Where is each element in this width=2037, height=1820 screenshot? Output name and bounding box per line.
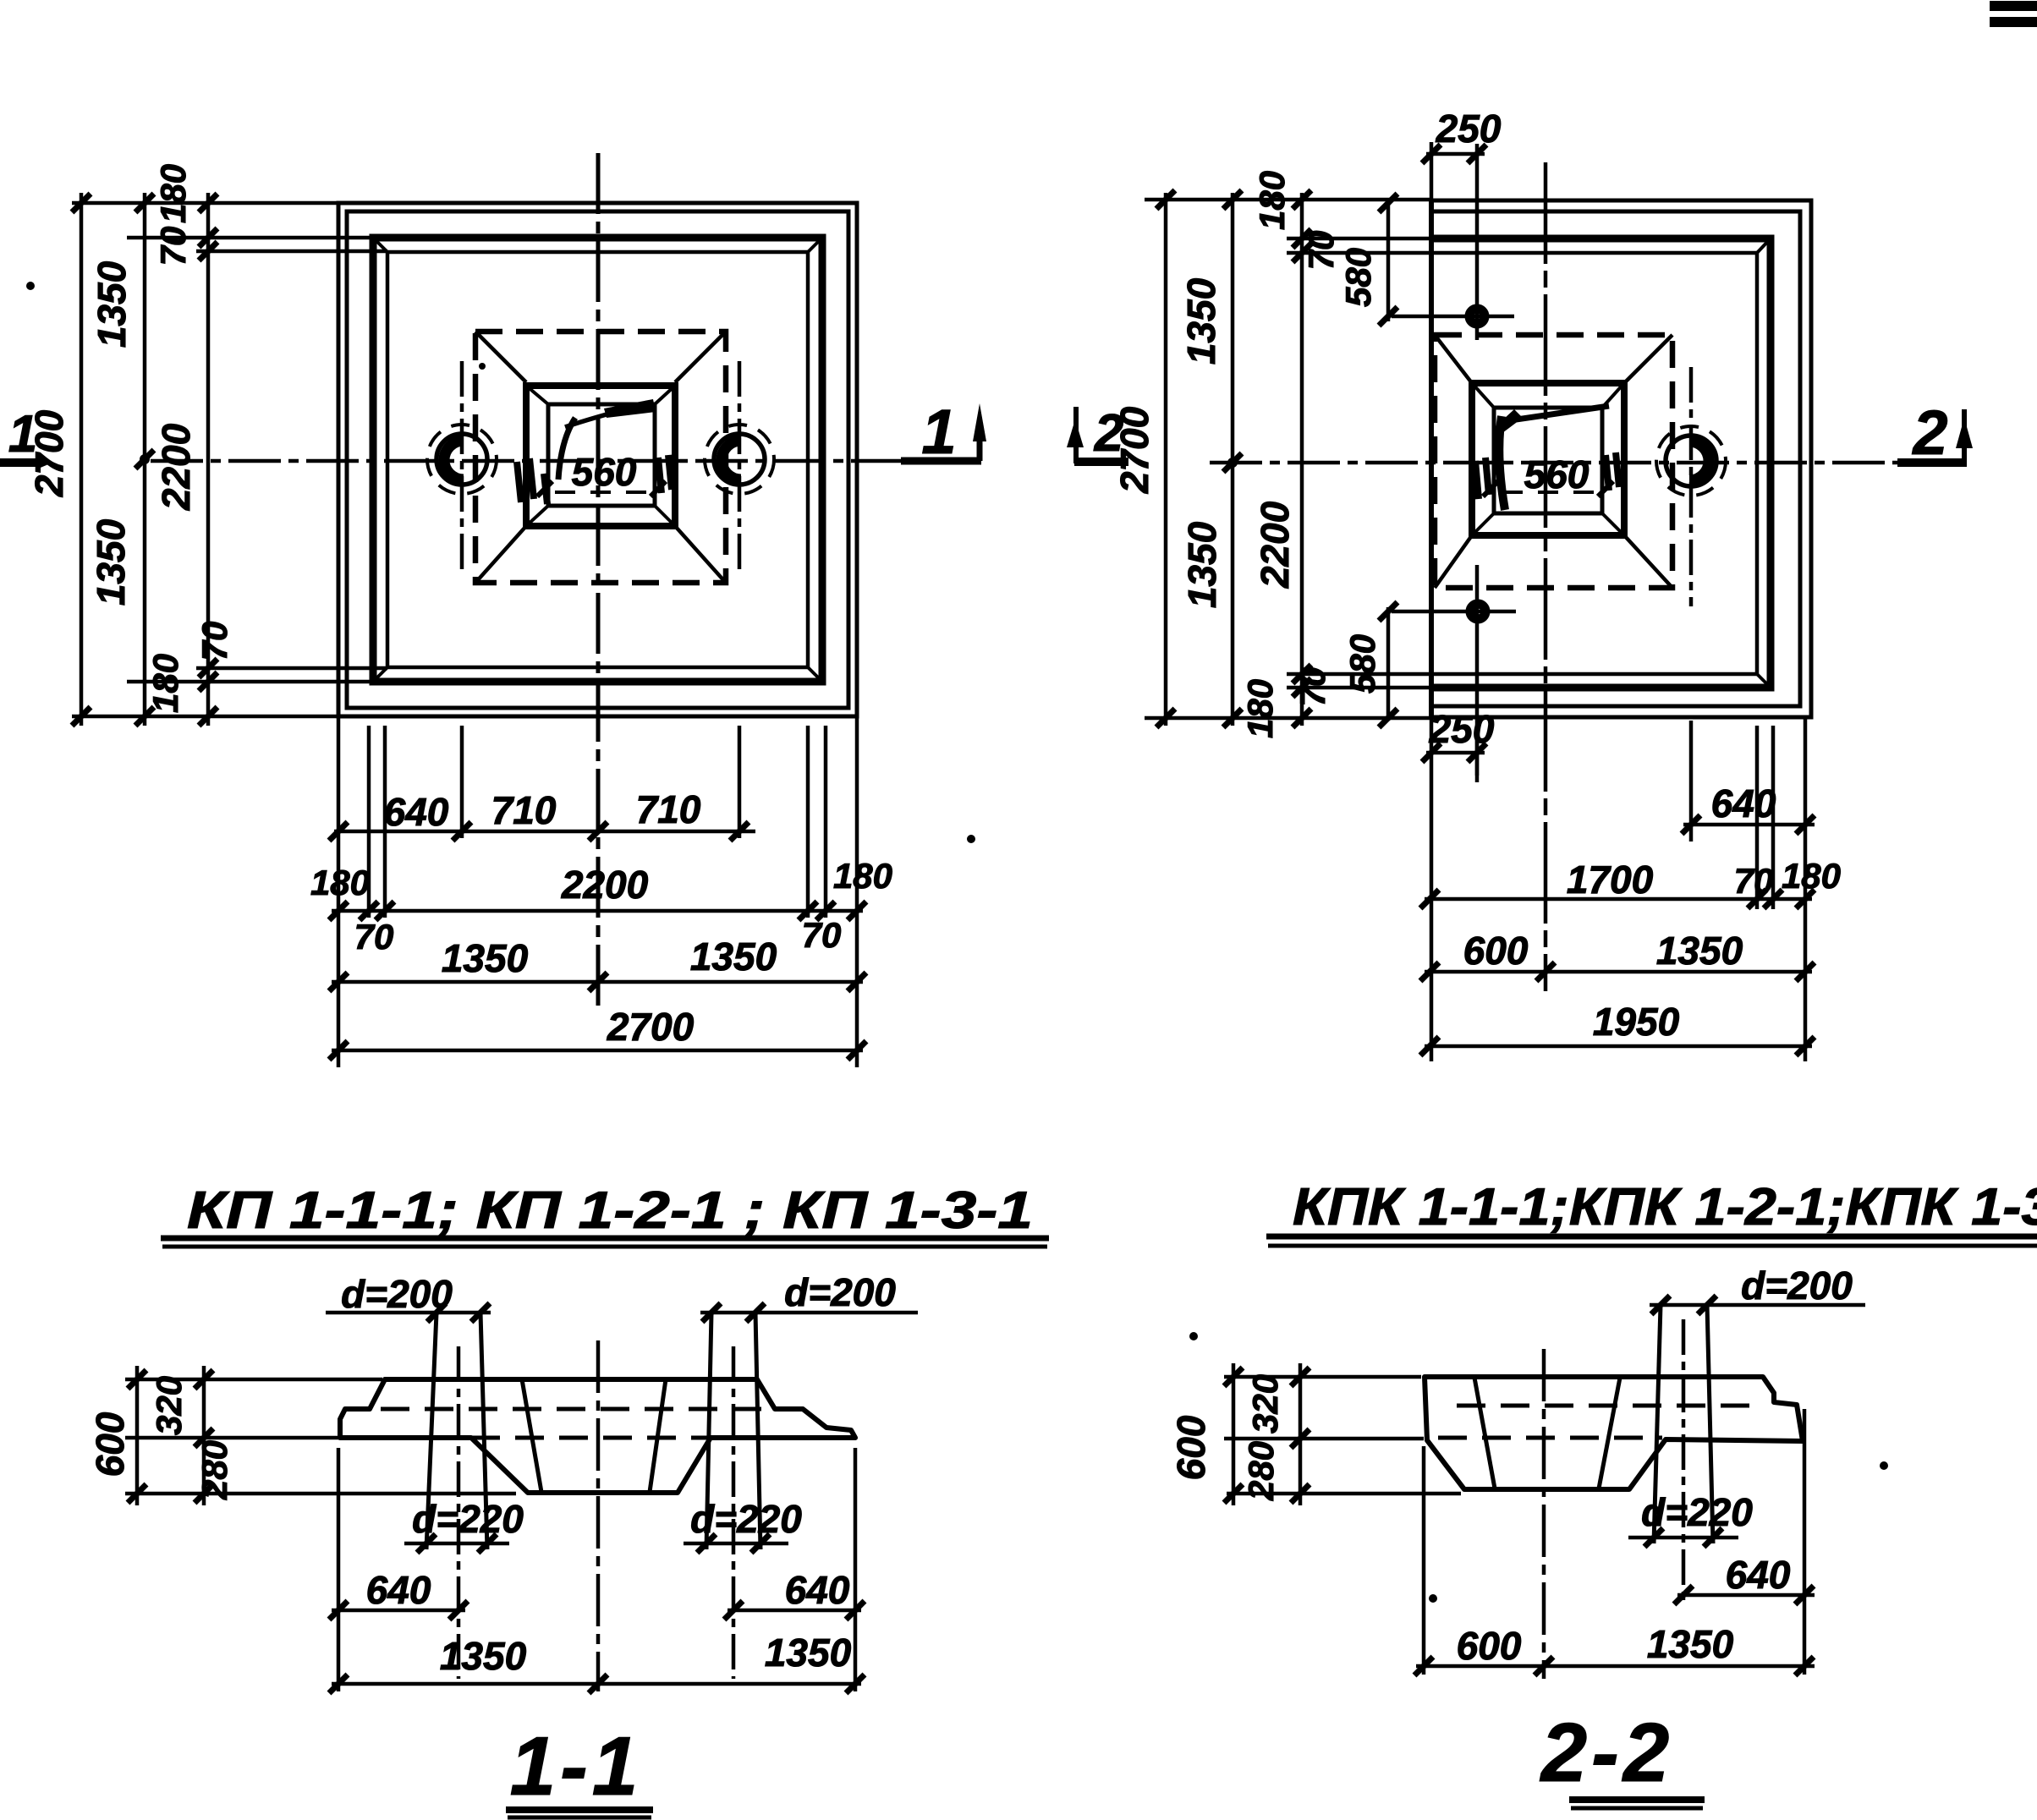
svg-text:d=200: d=200 xyxy=(341,1272,453,1316)
svg-text:600: 600 xyxy=(88,1412,132,1477)
svg-text:1350: 1350 xyxy=(1179,277,1223,365)
svg-text:2: 2 xyxy=(1911,397,1947,468)
svg-text:640: 640 xyxy=(1711,781,1776,825)
svg-text:70: 70 xyxy=(1293,667,1332,707)
svg-text:1350: 1350 xyxy=(90,260,134,348)
svg-text:180: 180 xyxy=(1240,679,1280,738)
svg-text:180: 180 xyxy=(153,164,193,223)
svg-text:600: 600 xyxy=(1457,1624,1522,1668)
svg-text:320: 320 xyxy=(1245,1374,1285,1434)
svg-text:70: 70 xyxy=(153,227,193,266)
svg-text:2200: 2200 xyxy=(561,863,649,907)
svg-text:d=220: d=220 xyxy=(1641,1490,1753,1534)
svg-text:1350: 1350 xyxy=(440,1634,527,1678)
svg-text:580: 580 xyxy=(1342,634,1382,693)
svg-text:2: 2 xyxy=(1094,404,1123,463)
svg-text:710: 710 xyxy=(491,788,557,832)
svg-text:600: 600 xyxy=(1463,929,1529,973)
svg-text:180: 180 xyxy=(310,863,370,902)
svg-text:1700: 1700 xyxy=(1567,858,1654,902)
svg-text:280: 280 xyxy=(195,1440,234,1500)
svg-text:560: 560 xyxy=(1524,452,1590,496)
svg-text:2200: 2200 xyxy=(154,423,198,511)
svg-text:710: 710 xyxy=(636,787,701,831)
svg-text:2200: 2200 xyxy=(1253,501,1297,589)
svg-text:70: 70 xyxy=(802,915,842,955)
svg-text:d=220: d=220 xyxy=(412,1497,524,1541)
svg-text:2700: 2700 xyxy=(607,1005,695,1049)
svg-text:d=200: d=200 xyxy=(784,1270,896,1314)
svg-text:1350: 1350 xyxy=(690,935,777,979)
svg-text:640: 640 xyxy=(785,1568,850,1612)
svg-text:640: 640 xyxy=(1726,1553,1791,1597)
svg-text:70: 70 xyxy=(1301,231,1341,271)
svg-text:1350: 1350 xyxy=(1656,929,1743,973)
svg-text:d=220: d=220 xyxy=(690,1497,802,1541)
svg-text:320: 320 xyxy=(149,1376,189,1435)
svg-text:1: 1 xyxy=(921,397,956,467)
svg-text:640: 640 xyxy=(366,1568,431,1612)
svg-text:70: 70 xyxy=(1734,861,1774,901)
svg-text:580: 580 xyxy=(1338,248,1378,307)
svg-text:70: 70 xyxy=(354,917,394,957)
svg-text:640: 640 xyxy=(384,790,449,834)
svg-text:180: 180 xyxy=(1782,856,1841,896)
svg-text:1950: 1950 xyxy=(1593,1000,1680,1044)
svg-text:1350: 1350 xyxy=(1647,1622,1734,1666)
svg-text:2-2: 2-2 xyxy=(1540,1706,1674,1799)
svg-text:280: 280 xyxy=(1241,1441,1281,1501)
svg-text:1350: 1350 xyxy=(1180,521,1224,608)
svg-text:600: 600 xyxy=(1169,1415,1213,1480)
svg-text:180: 180 xyxy=(833,856,892,896)
svg-text:560: 560 xyxy=(572,450,637,494)
svg-text:250: 250 xyxy=(1436,107,1502,151)
svg-text:250: 250 xyxy=(1429,707,1495,751)
svg-text:1350: 1350 xyxy=(765,1631,852,1675)
svg-text:1-1: 1-1 xyxy=(510,1719,643,1812)
svg-text:180: 180 xyxy=(145,654,185,713)
svg-text:1350: 1350 xyxy=(89,518,133,606)
svg-text:КП 1-1-1; КП 1-2-1 ; КП 1-3-1: КП 1-1-1; КП 1-2-1 ; КП 1-3-1 xyxy=(187,1181,1033,1240)
svg-text:КПК 1-1-1;КПК 1-2-1;КПК 1-3-1: КПК 1-1-1;КПК 1-2-1;КПК 1-3-1 xyxy=(1293,1178,2037,1236)
svg-text:d=200: d=200 xyxy=(1741,1264,1853,1307)
svg-text:70: 70 xyxy=(195,622,234,661)
svg-text:180: 180 xyxy=(1252,171,1292,230)
svg-text:1350: 1350 xyxy=(442,936,529,980)
svg-text:1: 1 xyxy=(8,405,37,463)
